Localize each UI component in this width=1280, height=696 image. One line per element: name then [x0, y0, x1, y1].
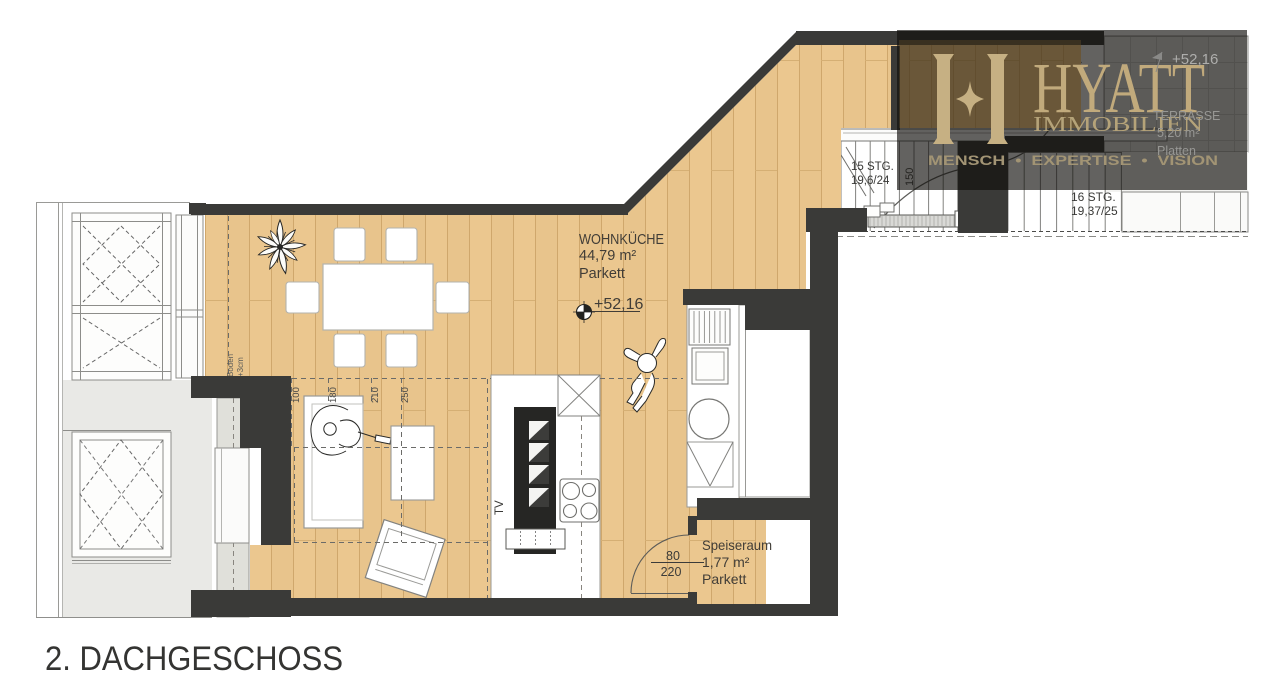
svg-text:+3cm: +3cm — [236, 357, 245, 377]
svg-text:220: 220 — [661, 565, 682, 579]
svg-text:210: 210 — [370, 387, 381, 403]
svg-text:100: 100 — [291, 387, 302, 403]
svg-text:Boden: Boden — [226, 354, 235, 377]
svg-text:TV: TV — [494, 500, 506, 515]
svg-text:5,20 m²: 5,20 m² — [1157, 126, 1199, 140]
svg-text:80: 80 — [666, 549, 680, 563]
svg-text:1,77 m²: 1,77 m² — [702, 554, 750, 570]
svg-text:250: 250 — [400, 387, 411, 403]
svg-text:Parkett: Parkett — [702, 571, 746, 587]
svg-text:16 STG.: 16 STG. — [1071, 190, 1116, 204]
svg-text:Platten: Platten — [1157, 144, 1196, 158]
svg-text:TERRASSE: TERRASSE — [1153, 109, 1220, 123]
svg-text:2. DACHGESCHOSS: 2. DACHGESCHOSS — [45, 640, 343, 678]
svg-text:Speiseraum: Speiseraum — [702, 537, 772, 553]
svg-text:44,79 m²: 44,79 m² — [579, 248, 636, 264]
svg-text:15 STG.: 15 STG. — [851, 161, 894, 173]
svg-text:Parkett: Parkett — [579, 266, 625, 282]
svg-text:19,37/25: 19,37/25 — [1071, 204, 1118, 218]
svg-text:+52,16: +52,16 — [594, 296, 643, 313]
svg-text:+52,16: +52,16 — [1172, 51, 1218, 68]
svg-text:WOHNKÜCHE: WOHNKÜCHE — [579, 230, 664, 248]
svg-text:19,6/24: 19,6/24 — [851, 175, 890, 187]
svg-text:180: 180 — [328, 387, 339, 403]
